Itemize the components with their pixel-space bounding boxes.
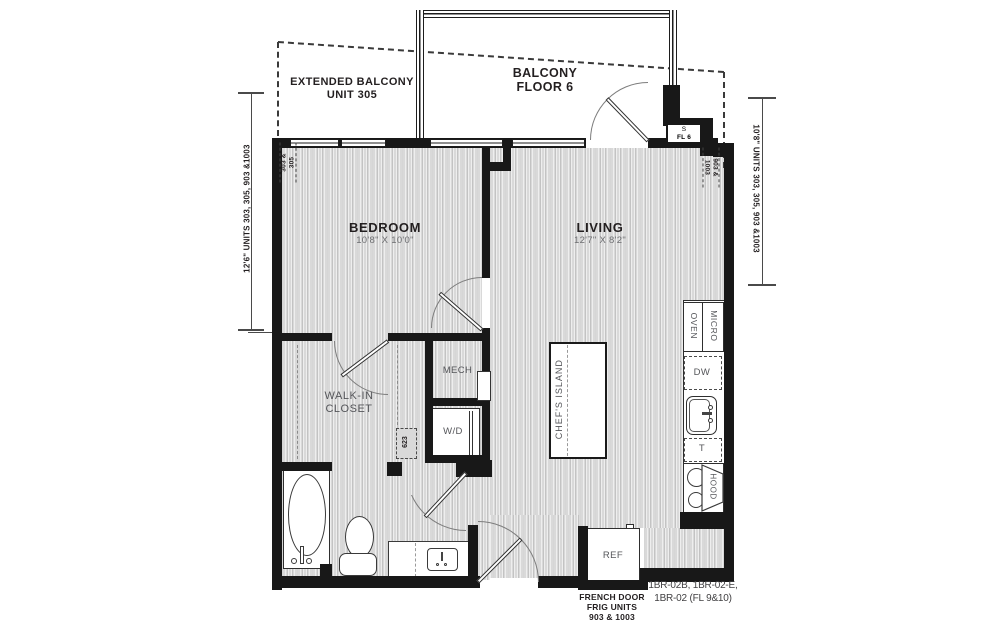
shaft-label-s: S bbox=[668, 126, 700, 134]
wall-bath-stub bbox=[387, 462, 402, 476]
right-dimension-label: 10'8" UNITS 303, 305, 903 &1003 bbox=[751, 69, 760, 309]
walkin-line1: WALK-IN bbox=[299, 390, 399, 403]
oven-label: OVEN bbox=[688, 286, 698, 366]
closet-code-label: 623 bbox=[402, 422, 410, 462]
left-extension-line bbox=[248, 332, 274, 333]
kitchen-floor-right-of-ref bbox=[644, 528, 724, 570]
dw-label: DW bbox=[683, 368, 721, 379]
island-dashed-line bbox=[567, 345, 568, 456]
top-right-units-label: 903 & 1003 bbox=[703, 148, 720, 188]
living-window-1 bbox=[430, 139, 503, 147]
floor-plan: S FL 6 EXTENDED BALCONY UNIT 305 BALCONY… bbox=[0, 0, 998, 626]
wall-ref-niche-bottom bbox=[578, 580, 648, 590]
kitchen-sink-basin bbox=[689, 399, 710, 432]
wall-bed-living-stub bbox=[503, 141, 511, 163]
vanity-faucet-dot2 bbox=[444, 563, 447, 566]
tub-faucet-dot2 bbox=[306, 558, 312, 564]
bedroom-window-1 bbox=[290, 139, 339, 147]
living-name: LIVING bbox=[520, 221, 680, 236]
living-window-2 bbox=[512, 139, 585, 147]
right-dimension-line bbox=[762, 97, 763, 285]
wall-bed-living-jog bbox=[482, 162, 511, 171]
kitchen-faucet-dot1 bbox=[708, 405, 713, 410]
top-left-units-line1: 303 & bbox=[281, 143, 289, 183]
living-label: LIVING 12'7" X 8'2" bbox=[520, 221, 680, 247]
balcony-label: BALCONY FLOOR 6 bbox=[465, 66, 625, 95]
toilet-bowl bbox=[345, 516, 374, 558]
top-left-units-line2: 305 bbox=[288, 143, 296, 183]
wall-hall-right-lower bbox=[482, 400, 490, 463]
plan-code-line2: 1BR-02 (FL 9&10) bbox=[645, 592, 741, 605]
wall-closet-top-b bbox=[388, 333, 490, 341]
wall-entry-left bbox=[468, 525, 478, 588]
bedroom-window-2 bbox=[341, 139, 386, 147]
top-right-units-line1: 903 & bbox=[711, 148, 719, 188]
kitchen-faucet-bar bbox=[702, 412, 712, 415]
walkin-closet-label: WALK-IN CLOSET bbox=[299, 390, 399, 415]
micro-label: MICRO bbox=[708, 286, 718, 366]
wall-bath-top bbox=[272, 462, 332, 471]
bedroom-label: BEDROOM 10'8" X 10'0" bbox=[305, 221, 465, 247]
wall-left bbox=[272, 138, 282, 590]
living-dims: 12'7" X 8'2" bbox=[520, 236, 680, 247]
bedroom-dims: 10'8" X 10'0" bbox=[305, 236, 465, 247]
extended-balcony-line1: EXTENDED BALCONY bbox=[272, 76, 432, 89]
balcony-line1: BALCONY bbox=[465, 66, 625, 80]
vanity-faucet-dot1 bbox=[436, 563, 439, 566]
extended-balcony-line2: UNIT 305 bbox=[272, 89, 432, 102]
shaft-label-fl6: FL 6 bbox=[668, 134, 700, 142]
tub-faucet-bar bbox=[300, 546, 304, 564]
left-dimension-tick-bottom bbox=[238, 329, 264, 331]
extended-balcony-label: EXTENDED BALCONY UNIT 305 bbox=[272, 76, 432, 101]
closet-rod-left bbox=[297, 345, 298, 459]
ref-label: REF bbox=[586, 551, 640, 562]
plan-code-line1: 1BR-02B, 1BR-02-E, bbox=[645, 579, 741, 592]
chefs-island-label: CHEF'S ISLAND bbox=[554, 354, 564, 444]
refrigerator-handle bbox=[626, 524, 634, 529]
top-left-units-label: 303 & 305 bbox=[280, 143, 297, 183]
left-dimension-label: 12'6" UNITS 303, 305, 903 &1003 bbox=[242, 89, 251, 329]
wall-bottom-left bbox=[272, 576, 480, 588]
vanity-dashed-divider bbox=[415, 543, 416, 577]
balcony-rail-left bbox=[416, 10, 424, 139]
plan-code: 1BR-02B, 1BR-02-E, 1BR-02 (FL 9&10) bbox=[645, 579, 741, 605]
oven-micro-divider bbox=[702, 303, 703, 351]
wall-right bbox=[724, 148, 734, 578]
kitchen-faucet-dot2 bbox=[708, 418, 713, 423]
wd-label: W/D bbox=[431, 427, 475, 438]
balcony-rail-right bbox=[669, 10, 677, 86]
mech-label: MECH bbox=[425, 366, 490, 377]
wall-closet-top-a bbox=[282, 333, 332, 341]
balcony-line2: FLOOR 6 bbox=[465, 80, 625, 94]
vanity-faucet-bar bbox=[441, 552, 443, 561]
walkin-line2: CLOSET bbox=[299, 403, 399, 416]
bedroom-name: BEDROOM bbox=[305, 221, 465, 236]
tub-faucet-dot1 bbox=[291, 558, 297, 564]
shaft-label-box: S FL 6 bbox=[666, 123, 702, 144]
top-right-units-line2: 1003 bbox=[704, 148, 712, 188]
frig-note-line3: 903 & 1003 bbox=[566, 612, 658, 622]
bathtub-basin bbox=[288, 474, 326, 556]
wall-toilet-pillar bbox=[320, 564, 332, 586]
hood-label: HOOD bbox=[708, 447, 717, 527]
toilet-tank bbox=[339, 553, 377, 576]
balcony-rail-top bbox=[416, 10, 677, 18]
